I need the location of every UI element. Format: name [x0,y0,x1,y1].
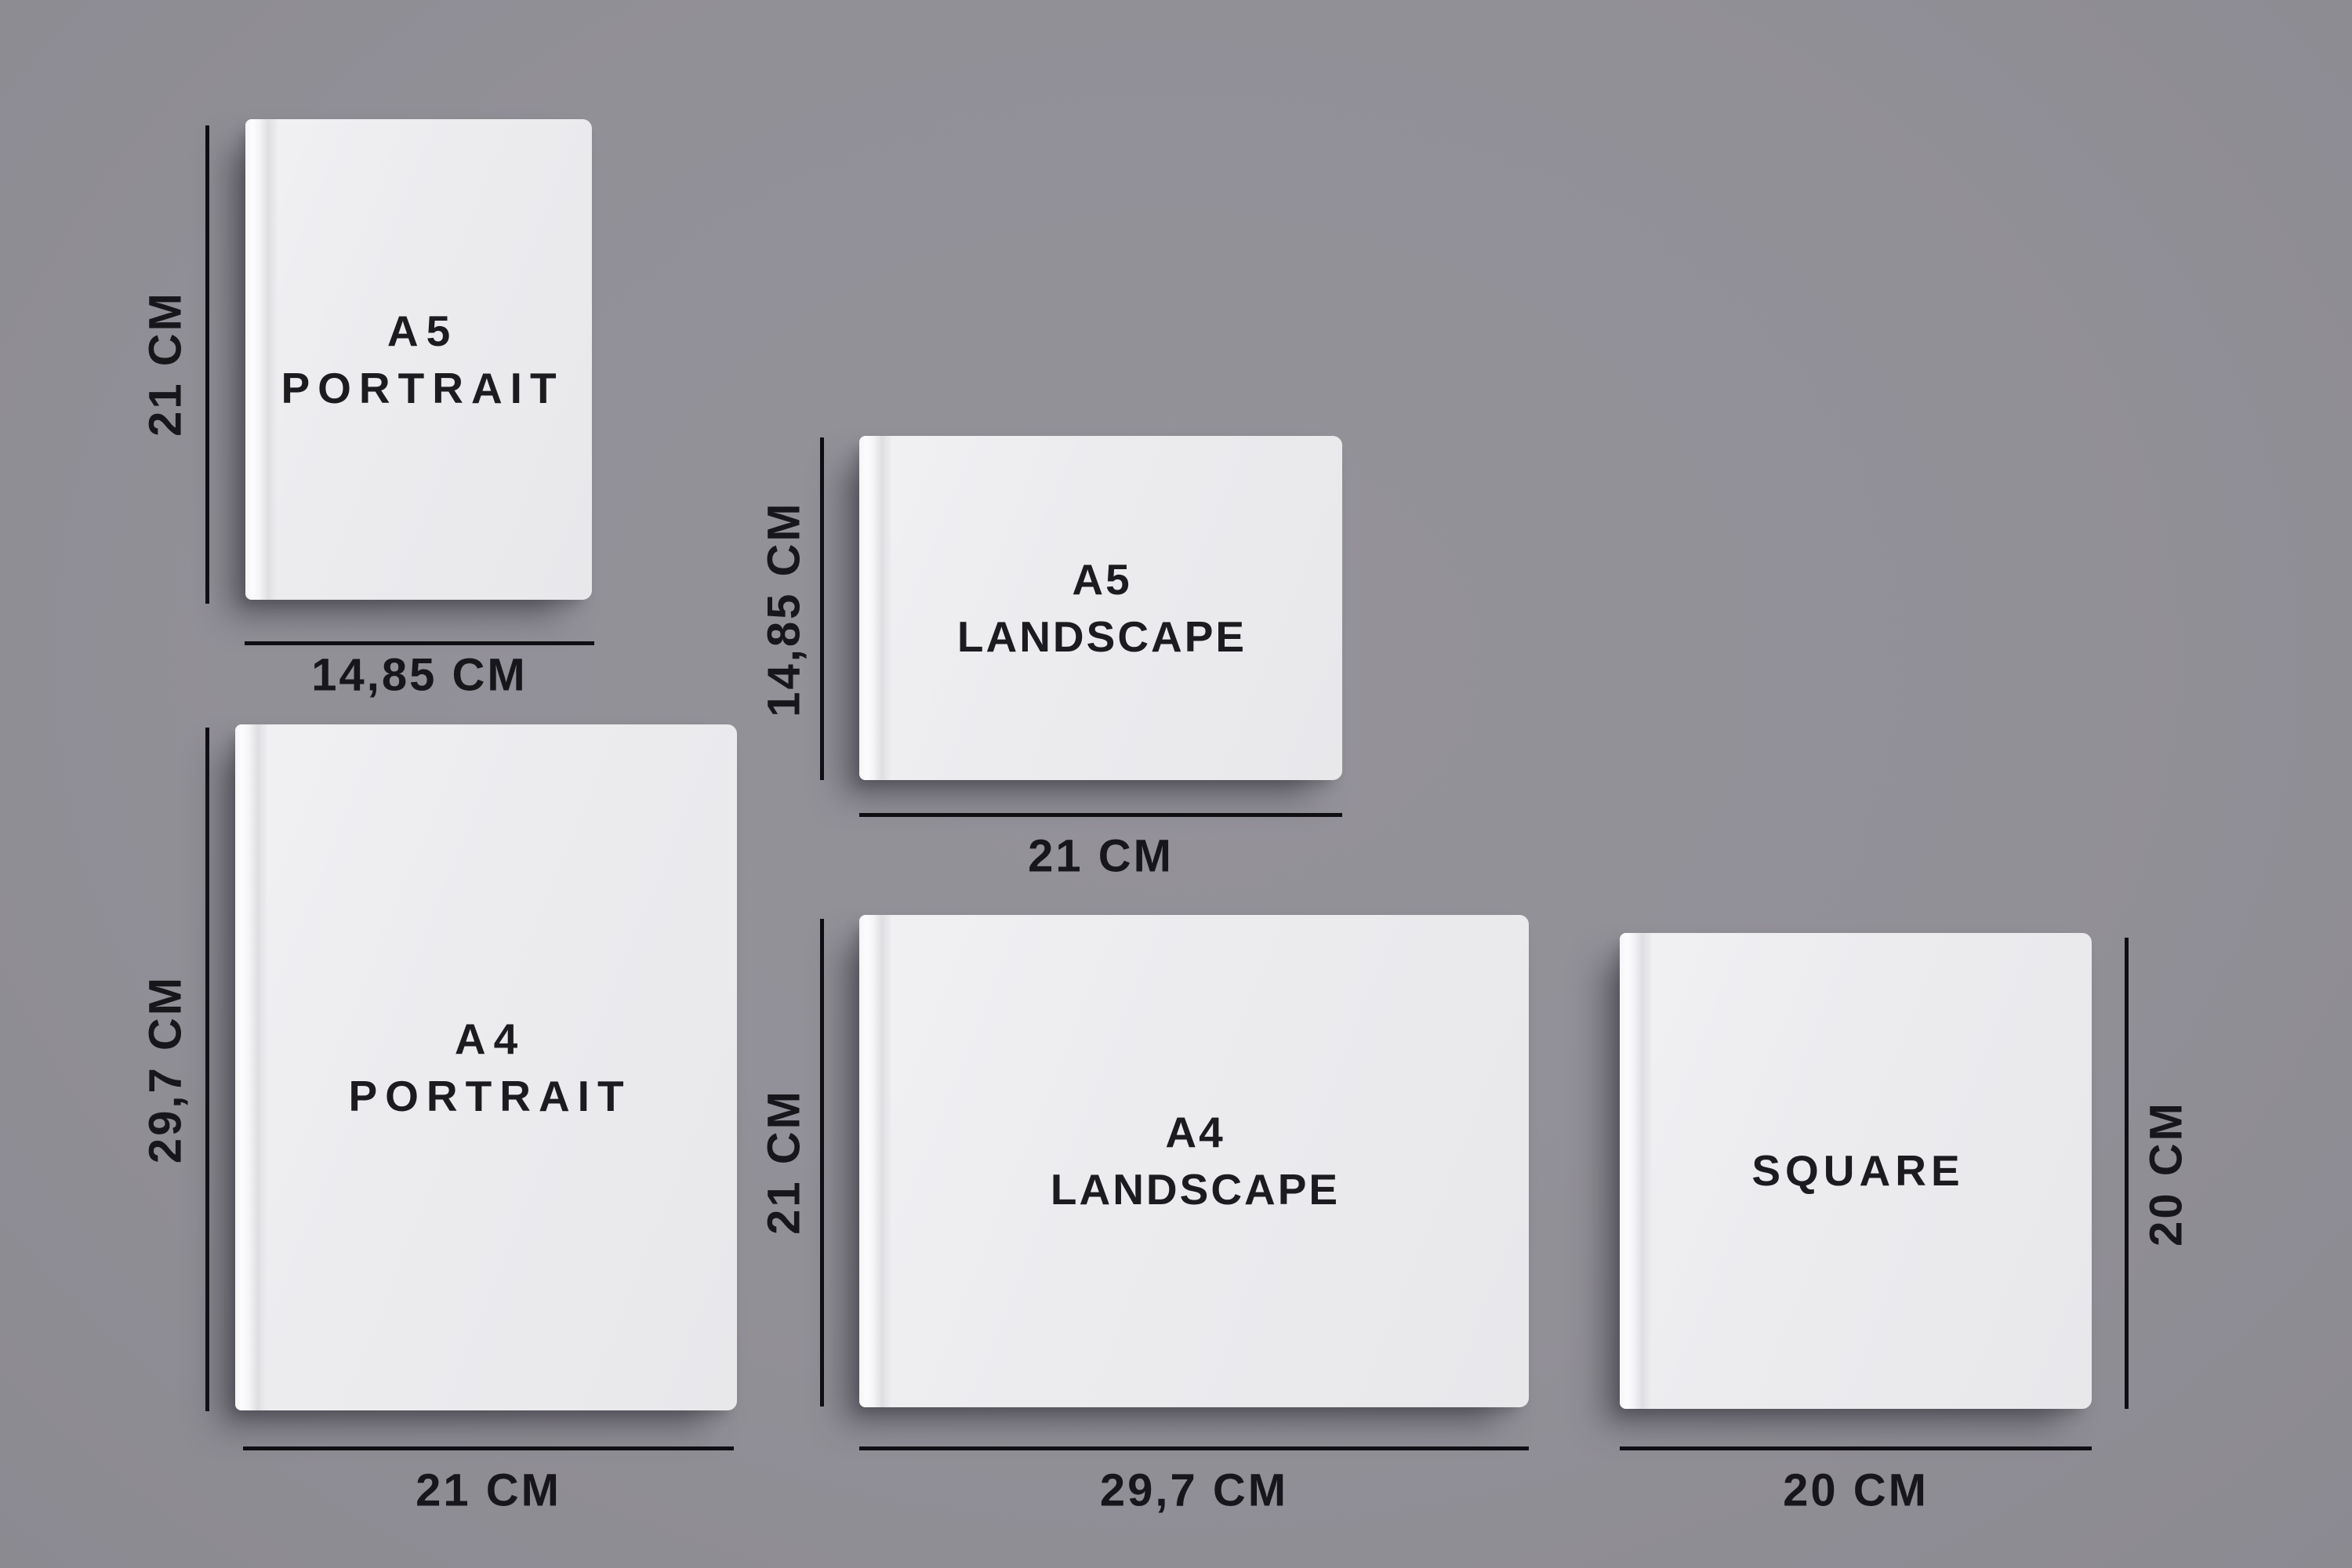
book-title: A4 PORTRAIT [235,724,737,1410]
width-dimension-line [859,1446,1529,1450]
book-cover-a5-landscape: A5 LANDSCAPE [859,436,1342,780]
book-cover-a4-landscape: A4 LANDSCAPE [859,915,1529,1407]
book-title-line2: LANDSCAPE [955,608,1247,666]
book-title: A5 LANDSCAPE [859,436,1342,780]
book-title-line1: SQUARE [1747,1142,1964,1200]
book-title-line1: A5 [379,303,458,360]
height-dimension-line [820,437,824,780]
width-dimension-label: 29,7 CM [1100,1465,1288,1517]
width-dimension-line [1620,1446,2092,1450]
book-title-line2: LANDSCAPE [1048,1161,1340,1218]
height-dimension-line [205,728,209,1411]
height-dimension-label: 29,7 CM [140,975,192,1163]
book-title: A4 LANDSCAPE [859,915,1529,1407]
book-title-line2: PORTRAIT [340,1068,631,1125]
width-dimension-label: 21 CM [416,1465,561,1517]
book-size-comparison-diagram: 21 CM A5 PORTRAIT 14,85 CM 14,85 CM A5 L… [0,0,2352,1568]
height-dimension-line [820,919,824,1406]
height-dimension-label: 21 CM [758,1089,811,1235]
book-title-line1: A4 [1163,1104,1225,1161]
book-cover-a5-portrait: A5 PORTRAIT [245,119,592,600]
height-dimension-line [205,125,209,604]
book-title: A5 PORTRAIT [245,119,592,600]
book-title: SQUARE [1620,933,2092,1409]
width-dimension-label: 20 CM [1783,1465,1929,1517]
width-dimension-line [243,1446,734,1450]
height-dimension-label: 14,85 CM [758,501,811,717]
width-dimension-label: 21 CM [1028,830,1174,883]
height-dimension-line [2125,938,2129,1409]
book-cover-a4-portrait: A4 PORTRAIT [235,724,737,1410]
book-title-line1: A5 [1069,551,1131,608]
width-dimension-line [245,641,594,645]
book-title-line1: A4 [447,1011,525,1068]
book-cover-square: SQUARE [1620,933,2092,1409]
width-dimension-line [859,813,1342,817]
height-dimension-label: 21 CM [140,291,192,437]
book-title-line2: PORTRAIT [273,360,564,417]
height-dimension-label: 20 CM [2140,1101,2193,1247]
width-dimension-label: 14,85 CM [311,649,527,702]
